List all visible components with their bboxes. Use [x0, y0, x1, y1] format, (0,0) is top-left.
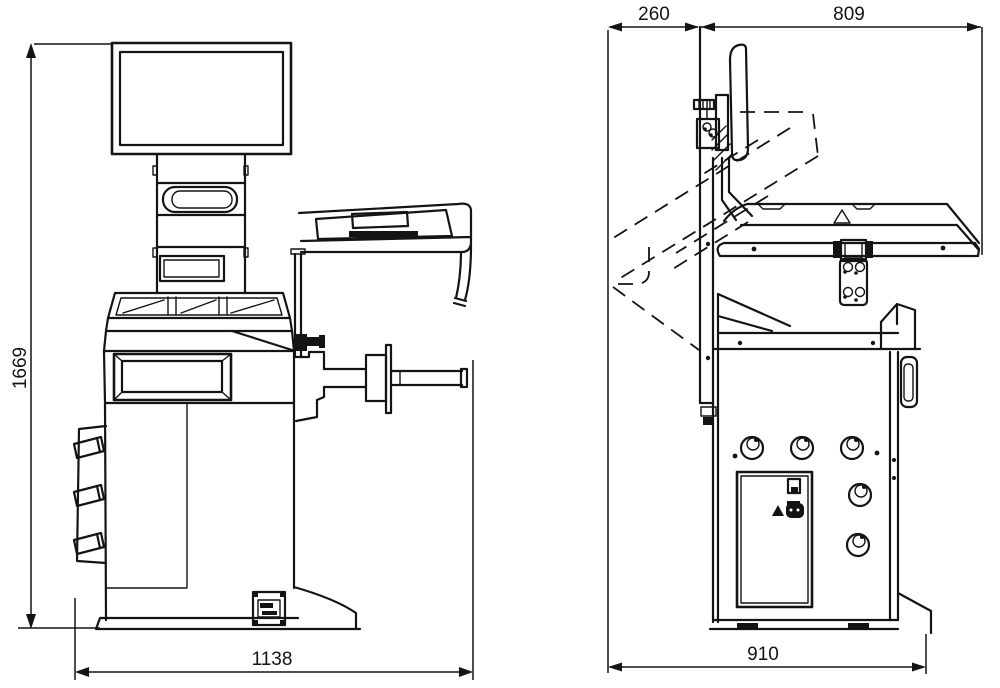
height-dimension-label: 1669	[10, 347, 31, 389]
shaft	[324, 369, 366, 387]
cone-knob	[849, 484, 871, 506]
cone-knob	[847, 534, 869, 556]
front-view: 1669	[10, 43, 473, 680]
guard-side-wall	[454, 245, 471, 306]
depth-dimension: 910	[608, 634, 926, 674]
arrow-right-icon	[912, 663, 926, 672]
foot	[848, 623, 869, 630]
monitor-side	[716, 45, 748, 160]
depth-dimension-label: 910	[747, 644, 779, 665]
rear-foot	[294, 587, 356, 629]
monitor-screen	[120, 52, 283, 145]
front-offset-dimension-label: 260	[638, 4, 670, 25]
shoulder	[718, 294, 790, 331]
foot	[737, 623, 758, 630]
monitor	[112, 43, 291, 154]
cabinet	[96, 331, 360, 629]
height-dimension: 1669	[10, 43, 112, 629]
wheel-balancer-drawing: 1669	[0, 0, 1000, 688]
cone-knobs	[733, 437, 896, 556]
monitor-bracket	[716, 95, 728, 150]
access-panel	[737, 472, 812, 607]
width-dimension: 1138	[75, 360, 473, 680]
shaft-end-cap	[461, 369, 467, 387]
base	[96, 618, 360, 629]
warning-triangle-icon	[772, 505, 784, 516]
support-column	[153, 154, 248, 293]
arrow-left-icon	[608, 663, 622, 672]
guard-depth-dimension-label: 809	[833, 4, 865, 25]
guard-clamp-knob	[294, 334, 307, 351]
top-dimensions: 260 809	[608, 4, 981, 32]
cone-knob	[841, 437, 863, 459]
wheel-guard-rod	[291, 249, 325, 357]
weight-tray	[106, 293, 292, 331]
technical-drawing-canvas: 1669	[0, 0, 1000, 688]
wheel-guard-hood	[718, 204, 979, 256]
guard-strip	[349, 231, 418, 237]
safety-label-icons	[772, 479, 804, 518]
support-column-side	[700, 158, 752, 622]
cone-knob	[741, 437, 763, 459]
width-dimension-label: 1138	[252, 649, 293, 670]
rating-plate	[253, 592, 285, 625]
arrow-up-icon	[26, 43, 36, 58]
shock-hazard-icon	[786, 503, 804, 518]
tray-end-cap	[881, 304, 915, 349]
shaft-bracket	[833, 240, 873, 305]
wheel-guard-front	[299, 204, 471, 306]
cabinet-door	[106, 403, 187, 588]
clamp-knob-icon	[694, 100, 714, 109]
arrow-down-icon	[26, 614, 36, 629]
cone-knob	[791, 437, 813, 459]
hub-cylinder	[366, 355, 386, 401]
warning-triangle-icon	[834, 210, 850, 223]
arrow-left-icon	[75, 667, 89, 677]
shaft-assembly	[295, 345, 467, 421]
side-view: 260 809	[608, 4, 982, 674]
arrow-right-icon	[459, 667, 473, 677]
flange-disc	[386, 345, 391, 413]
cone-pockets	[74, 426, 106, 563]
kick-plate	[898, 593, 931, 633]
cone-peg	[74, 533, 104, 554]
cabinet-side	[710, 294, 931, 633]
